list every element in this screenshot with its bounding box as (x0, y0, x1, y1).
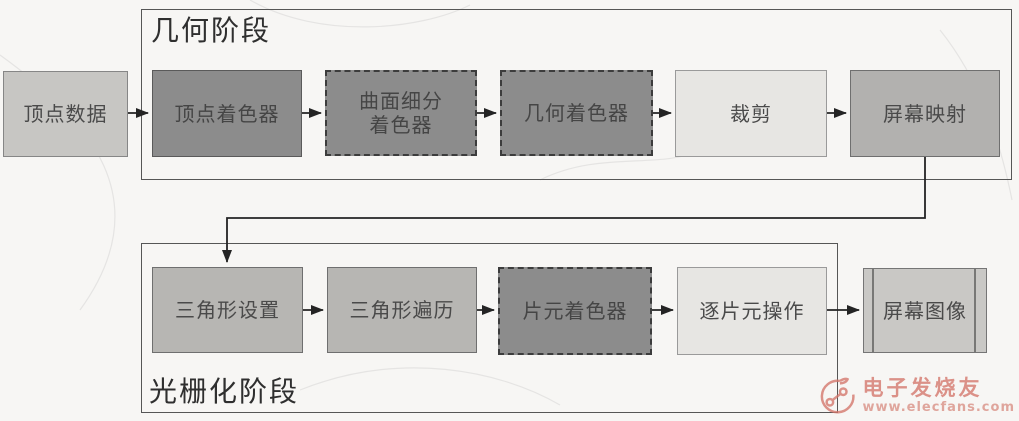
node-per-fragment-operations-label: 逐片元操作 (700, 299, 805, 323)
node-triangle-traversal-label: 三角形遍历 (350, 298, 455, 322)
node-vertex-shader-label: 顶点着色器 (175, 102, 280, 126)
elecfans-logo-icon (817, 375, 859, 417)
rasterization-stage-label: 光栅化阶段 (149, 376, 299, 408)
node-triangle-setup: 三角形设置 (152, 267, 303, 353)
node-tessellation-shader: 曲面细分着色器 (325, 70, 477, 156)
watermark-texts: 电子发烧友 www.elecfans.com (863, 377, 1015, 416)
node-per-fragment-operations: 逐片元操作 (677, 267, 827, 355)
screen-image-left-rule (872, 269, 874, 352)
node-clipping-label: 裁剪 (730, 102, 772, 126)
node-screen-mapping: 屏幕映射 (850, 70, 1000, 157)
geometry-stage-label: 几何阶段 (151, 15, 271, 47)
node-fragment-shader-label: 片元着色器 (523, 299, 628, 323)
node-geometry-shader: 几何着色器 (500, 70, 653, 156)
node-clipping: 裁剪 (675, 70, 827, 157)
node-triangle-setup-label: 三角形设置 (175, 298, 280, 322)
node-screen-image: 屏幕图像 (863, 268, 987, 353)
watermark: 电子发烧友 www.elecfans.com (817, 375, 1015, 417)
node-triangle-traversal: 三角形遍历 (327, 267, 477, 353)
watermark-brand: 电子发烧友 (863, 377, 983, 400)
watermark-url: www.elecfans.com (863, 400, 1015, 416)
node-fragment-shader: 片元着色器 (498, 267, 652, 355)
node-screen-mapping-label: 屏幕映射 (883, 102, 967, 126)
pipeline-diagram: 几何阶段 光栅化阶段 顶点数据 顶点着色器 曲面细分着色器 几何着色器 裁剪 屏… (0, 0, 1019, 421)
node-vertex-data: 顶点数据 (3, 71, 128, 157)
node-vertex-data-label: 顶点数据 (24, 102, 108, 126)
screen-image-right-rule (974, 269, 976, 352)
node-geometry-shader-label: 几何着色器 (524, 101, 629, 125)
node-screen-image-label: 屏幕图像 (883, 299, 967, 323)
node-tessellation-shader-label: 曲面细分着色器 (357, 89, 445, 137)
node-vertex-shader: 顶点着色器 (152, 70, 302, 157)
